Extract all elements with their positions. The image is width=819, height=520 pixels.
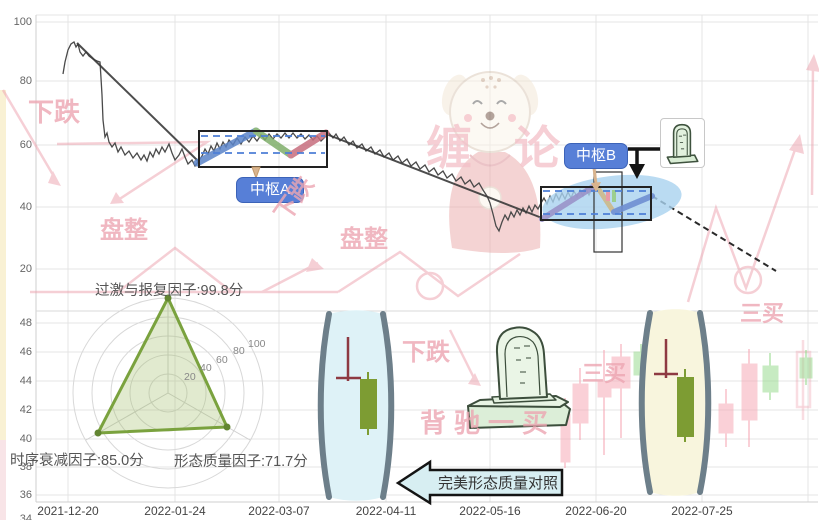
radar-scale-tick: 100 [248,338,266,350]
watermark-decline-3: 下跌 [402,332,450,367]
radar-factor-right: 形态质量因子:71.7分 [174,450,308,471]
sub-y-tick: 44 [2,375,32,387]
brand-watermark-right: 论 [514,112,560,178]
main-y-tick: 80 [2,75,32,87]
callout-label: 完美形态质量对照 [434,472,562,493]
x-tick-date: 2022-03-07 [248,504,309,518]
watermark-divergence-first-buy: 背驰一买 [420,403,556,440]
x-tick-date: 2022-01-24 [144,504,205,518]
watermark-decline-1: 下跌 [28,92,80,129]
watermark-third-buy-2: 三买 [582,356,626,388]
x-tick-date: 2022-06-20 [565,504,626,518]
edge-watermark-strips [0,90,6,520]
main-y-tick: 60 [2,139,32,151]
pivot-b-connector-arrow [628,149,661,179]
x-tick-date: 2021-12-20 [37,504,98,518]
radar-factor-left: 时序衰减因子:85.0分 [10,449,144,470]
radar-scale-tick: 20 [184,371,196,383]
pivot-b-label-chip: 中枢B [564,143,628,169]
mini-tombstone-icon [661,119,703,166]
tombstone-thumbnail-box [660,118,705,168]
radar-scale-tick: 40 [200,362,212,374]
radar-scale-tick: 60 [216,354,228,366]
main-y-tick: 20 [2,263,32,275]
lens-right [642,309,709,496]
sub-y-tick: 46 [2,346,32,358]
brand-watermark-left: 缠 [426,112,472,178]
chan-theory-chart: 100 80 60 40 20 48 46 44 42 40 38 36 34 … [0,0,819,520]
watermark-consolidation-2: 盘整 [340,219,388,254]
sub-y-tick: 34 [2,513,32,520]
watermark-consolidation-1: 盘整 [100,210,148,245]
x-tick-date: 2022-07-25 [671,504,732,518]
radar-factor-top: 过激与报复因子:99.8分 [95,279,243,300]
watermark-third-buy-1: 三买 [740,296,784,328]
lens-left-candle [360,372,377,435]
sub-y-tick: 40 [2,433,32,445]
main-y-tick: 40 [2,201,32,213]
x-tick-date: 2022-04-11 [356,504,417,518]
lens-right-candle [677,369,694,442]
sub-y-tick: 48 [2,317,32,329]
lens-left [321,310,392,501]
sub-y-tick: 42 [2,404,32,416]
main-y-tick: 100 [2,16,32,28]
pivot-a [197,131,327,178]
sub-y-tick: 36 [2,489,32,501]
radar-scale-tick: 80 [233,345,245,357]
x-tick-date: 2022-05-16 [459,504,520,518]
chart-canvas [0,0,819,520]
